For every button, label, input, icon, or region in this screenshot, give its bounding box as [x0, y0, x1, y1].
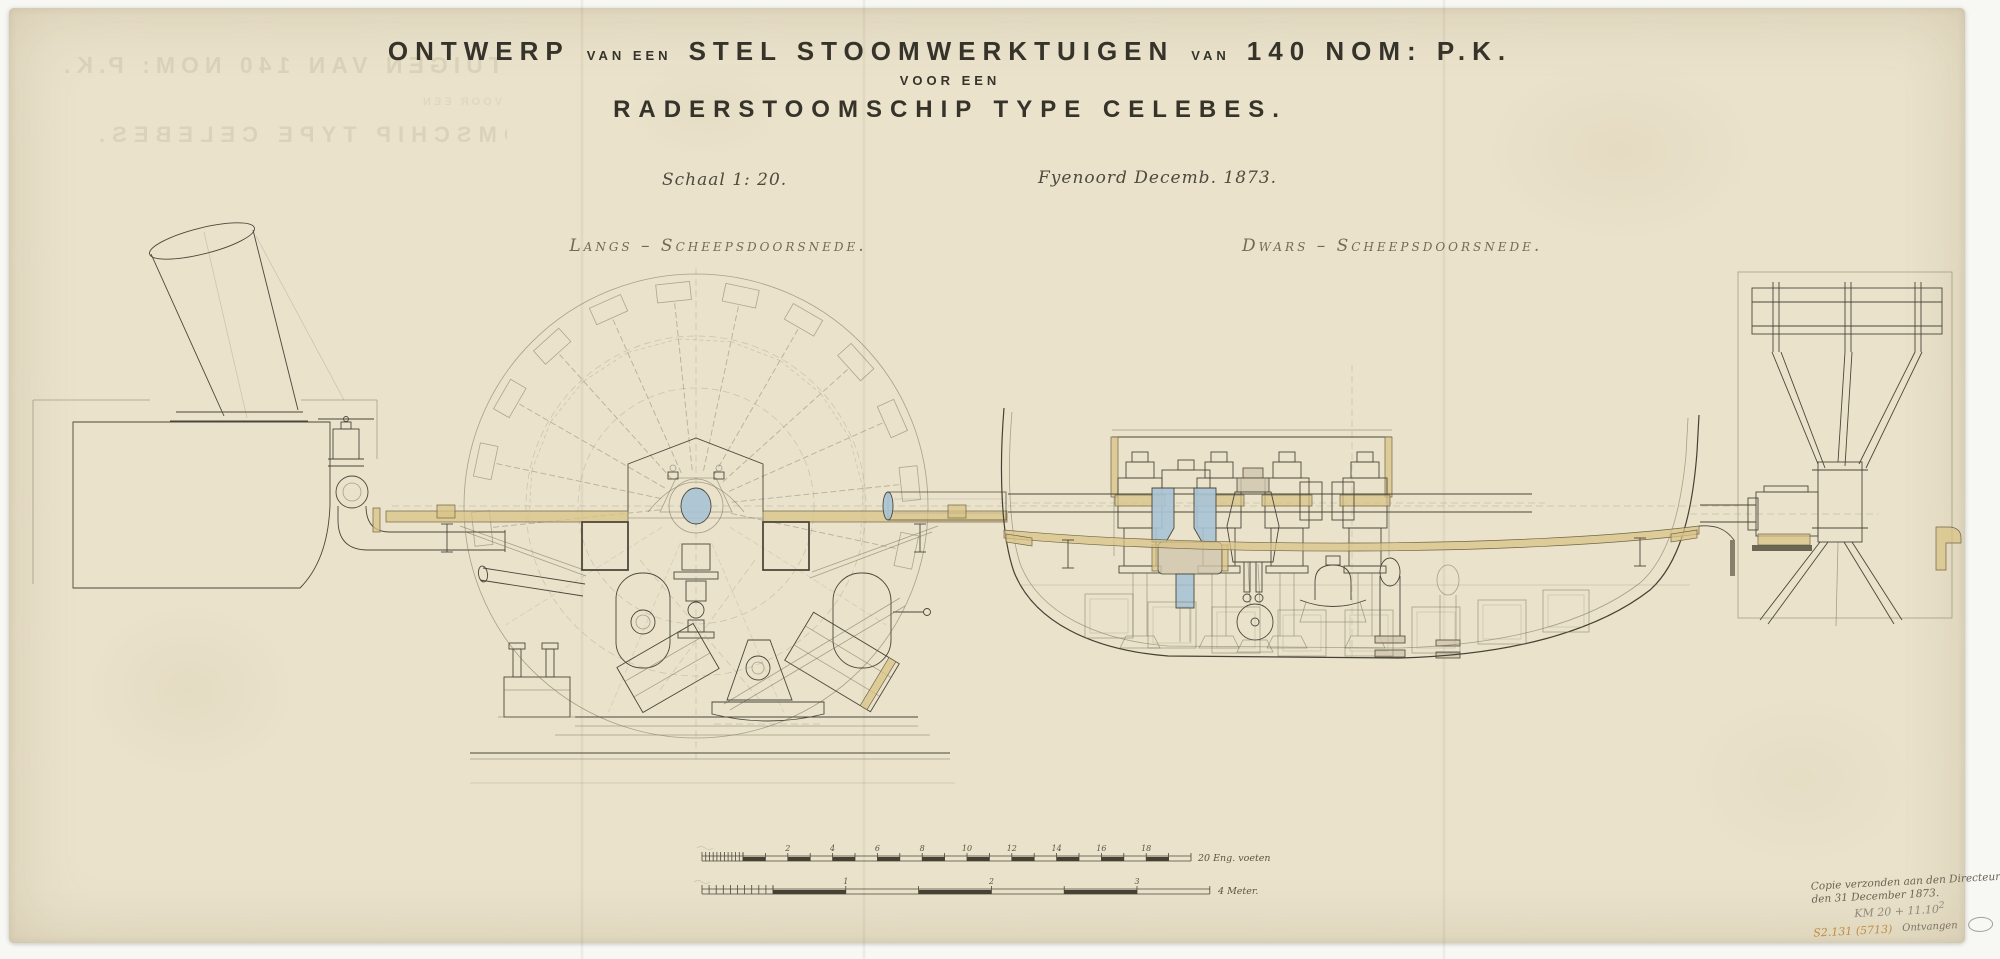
transverse-section-view [1000, 365, 1699, 662]
deck-beam-port [386, 511, 628, 522]
sponson-box [763, 522, 809, 570]
scale-tick: 1 [843, 877, 848, 886]
deck-ibeam [441, 524, 453, 552]
oval-stamp [1967, 916, 1993, 932]
scale-tick: 10 [962, 844, 972, 853]
scale-tick: 2 [784, 844, 790, 853]
received-note: Ontvangen [1902, 920, 1958, 934]
pipe-flange [373, 508, 380, 532]
auxiliary-pipe-and-pedestal [477, 565, 585, 717]
shaft-journal-blue [681, 488, 711, 524]
archive-notes: Copie verzonden aan den Directeur den 31… [1811, 871, 1994, 940]
paddle-wheel-front-view [1690, 272, 1961, 626]
crank-webs-blue [1152, 460, 1228, 642]
frame-post [1385, 437, 1392, 497]
scale-bars [702, 852, 1210, 894]
scale-tick: 14 [1052, 844, 1062, 853]
boiler-and-funnel-view [33, 215, 585, 717]
deck-chock [948, 505, 966, 518]
scale-tick: 18 [1141, 844, 1151, 853]
deck-sheer-beam [1004, 526, 1699, 551]
scale-tick: 8 [920, 844, 925, 853]
engine-bed-pan [712, 702, 824, 721]
crank-a-frame [727, 640, 792, 700]
scale-tick: 16 [1096, 844, 1106, 853]
outer-shaft-end [1690, 486, 1878, 551]
sponson-bracket [1936, 527, 1961, 570]
inclined-cylinder-port [617, 623, 719, 712]
frame-post [1111, 437, 1118, 497]
longitudinal-section-view [386, 268, 1007, 783]
steam-valve [318, 417, 374, 509]
deck-chock [437, 505, 455, 518]
float-boards [1752, 288, 1942, 334]
deck-ibeam [1062, 540, 1074, 568]
orange-inventory-ref: S2.131 (5713) [1813, 922, 1893, 939]
scale-feet-label: 20 Eng. voeten [1197, 853, 1271, 864]
boiler-body [73, 422, 330, 588]
funnel-top [146, 215, 257, 266]
scale-tick: 2 [988, 877, 994, 886]
scale-tick: 12 [1007, 844, 1017, 853]
wheel-hub-front [1812, 462, 1868, 542]
paddle-shaft-hub [660, 465, 732, 533]
scale-tick: 4 [829, 844, 835, 853]
inclined-cylinder-stbd [785, 612, 900, 712]
oscillating-engine-assembly [616, 544, 931, 724]
scale-tick: 3 [1134, 877, 1139, 886]
deck-ibeam [1634, 538, 1646, 566]
scale-meter-label: 4 Meter. [1217, 886, 1258, 897]
scan-backdrop: STEL STOOMWERKTUIGEN VAN 140 NOM: P.K. V… [0, 0, 2000, 959]
boiler-casing-outline [33, 400, 377, 584]
scale-tick: 6 [875, 844, 880, 853]
engine-foundation [470, 717, 955, 783]
technical-drawing-svg: 2 4 6 8 10 12 14 16 18 20 Eng. voeten 1 … [0, 0, 2000, 959]
